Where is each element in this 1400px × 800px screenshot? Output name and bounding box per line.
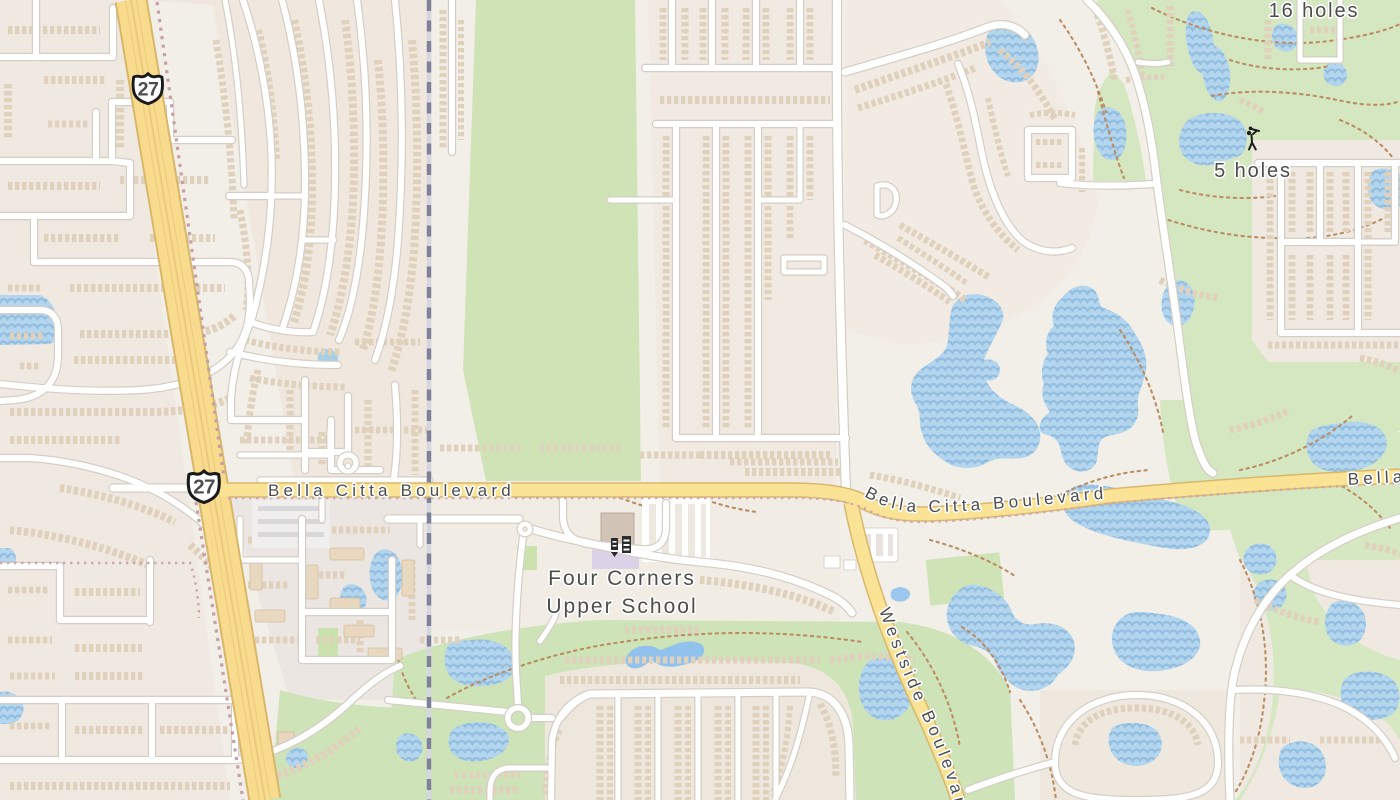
svg-text:27: 27 xyxy=(193,476,215,499)
svg-text:27: 27 xyxy=(138,78,159,100)
svg-text:Upper School: Upper School xyxy=(546,595,697,618)
svg-text:5 holes: 5 holes xyxy=(1214,160,1292,182)
svg-text:16 holes: 16 holes xyxy=(1269,0,1360,22)
svg-text:Four Corners: Four Corners xyxy=(548,567,696,590)
svg-text:Bella: Bella xyxy=(1347,467,1400,489)
svg-text:Bella Citta Boulevard: Bella Citta Boulevard xyxy=(268,481,515,500)
